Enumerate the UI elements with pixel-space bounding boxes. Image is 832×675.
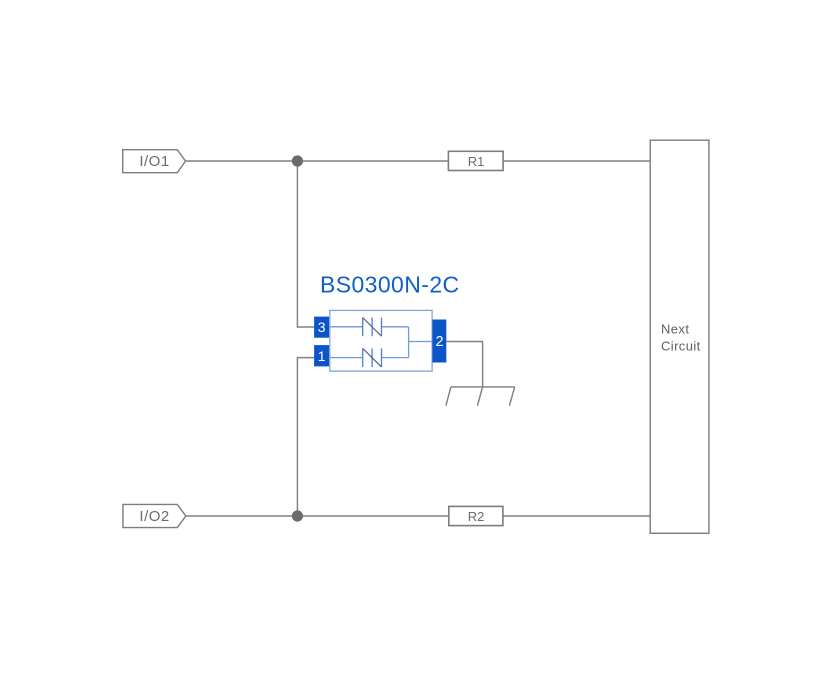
svg-text:3: 3 [318,319,326,335]
svg-text:1: 1 [318,348,326,364]
svg-text:Next: Next [661,322,689,337]
svg-text:2: 2 [435,334,443,350]
svg-text:R2: R2 [468,509,485,524]
svg-text:BS0300N-2C: BS0300N-2C [320,272,460,298]
svg-text:I/O1: I/O1 [139,153,169,170]
svg-text:I/O2: I/O2 [139,508,169,525]
svg-text:R1: R1 [468,154,485,169]
svg-text:Circuit: Circuit [661,338,701,353]
